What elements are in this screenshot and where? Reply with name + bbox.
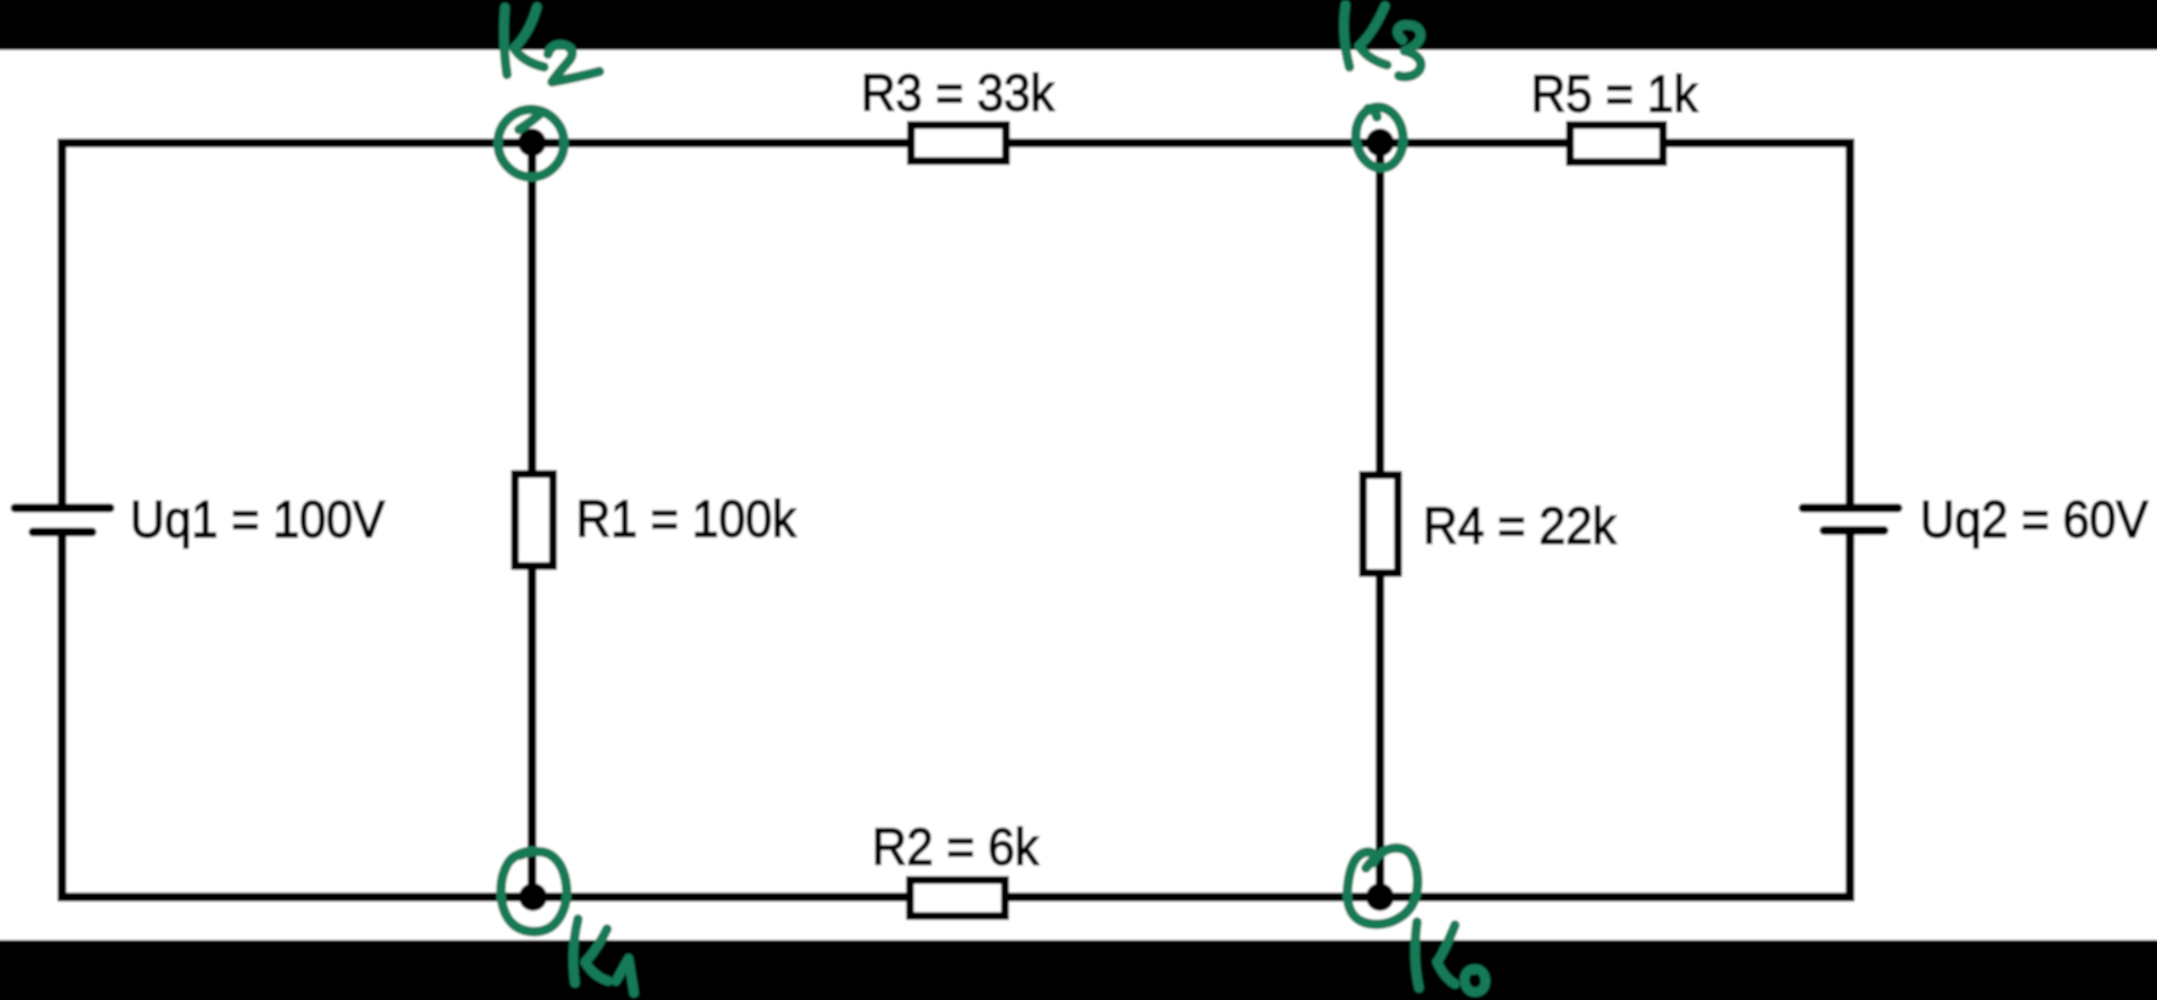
svg-text:R5 = 1k: R5 = 1k bbox=[1531, 65, 1699, 123]
svg-text:Uq2 = 60V: Uq2 = 60V bbox=[1920, 490, 2149, 548]
svg-text:R4 = 22k: R4 = 22k bbox=[1423, 497, 1617, 555]
svg-text:R3 = 33k: R3 = 33k bbox=[861, 64, 1055, 122]
svg-text:R1 = 100k: R1 = 100k bbox=[576, 490, 797, 548]
svg-text:R2 = 6k: R2 = 6k bbox=[872, 818, 1040, 876]
svg-text:Uq1 = 100V: Uq1 = 100V bbox=[130, 490, 385, 548]
